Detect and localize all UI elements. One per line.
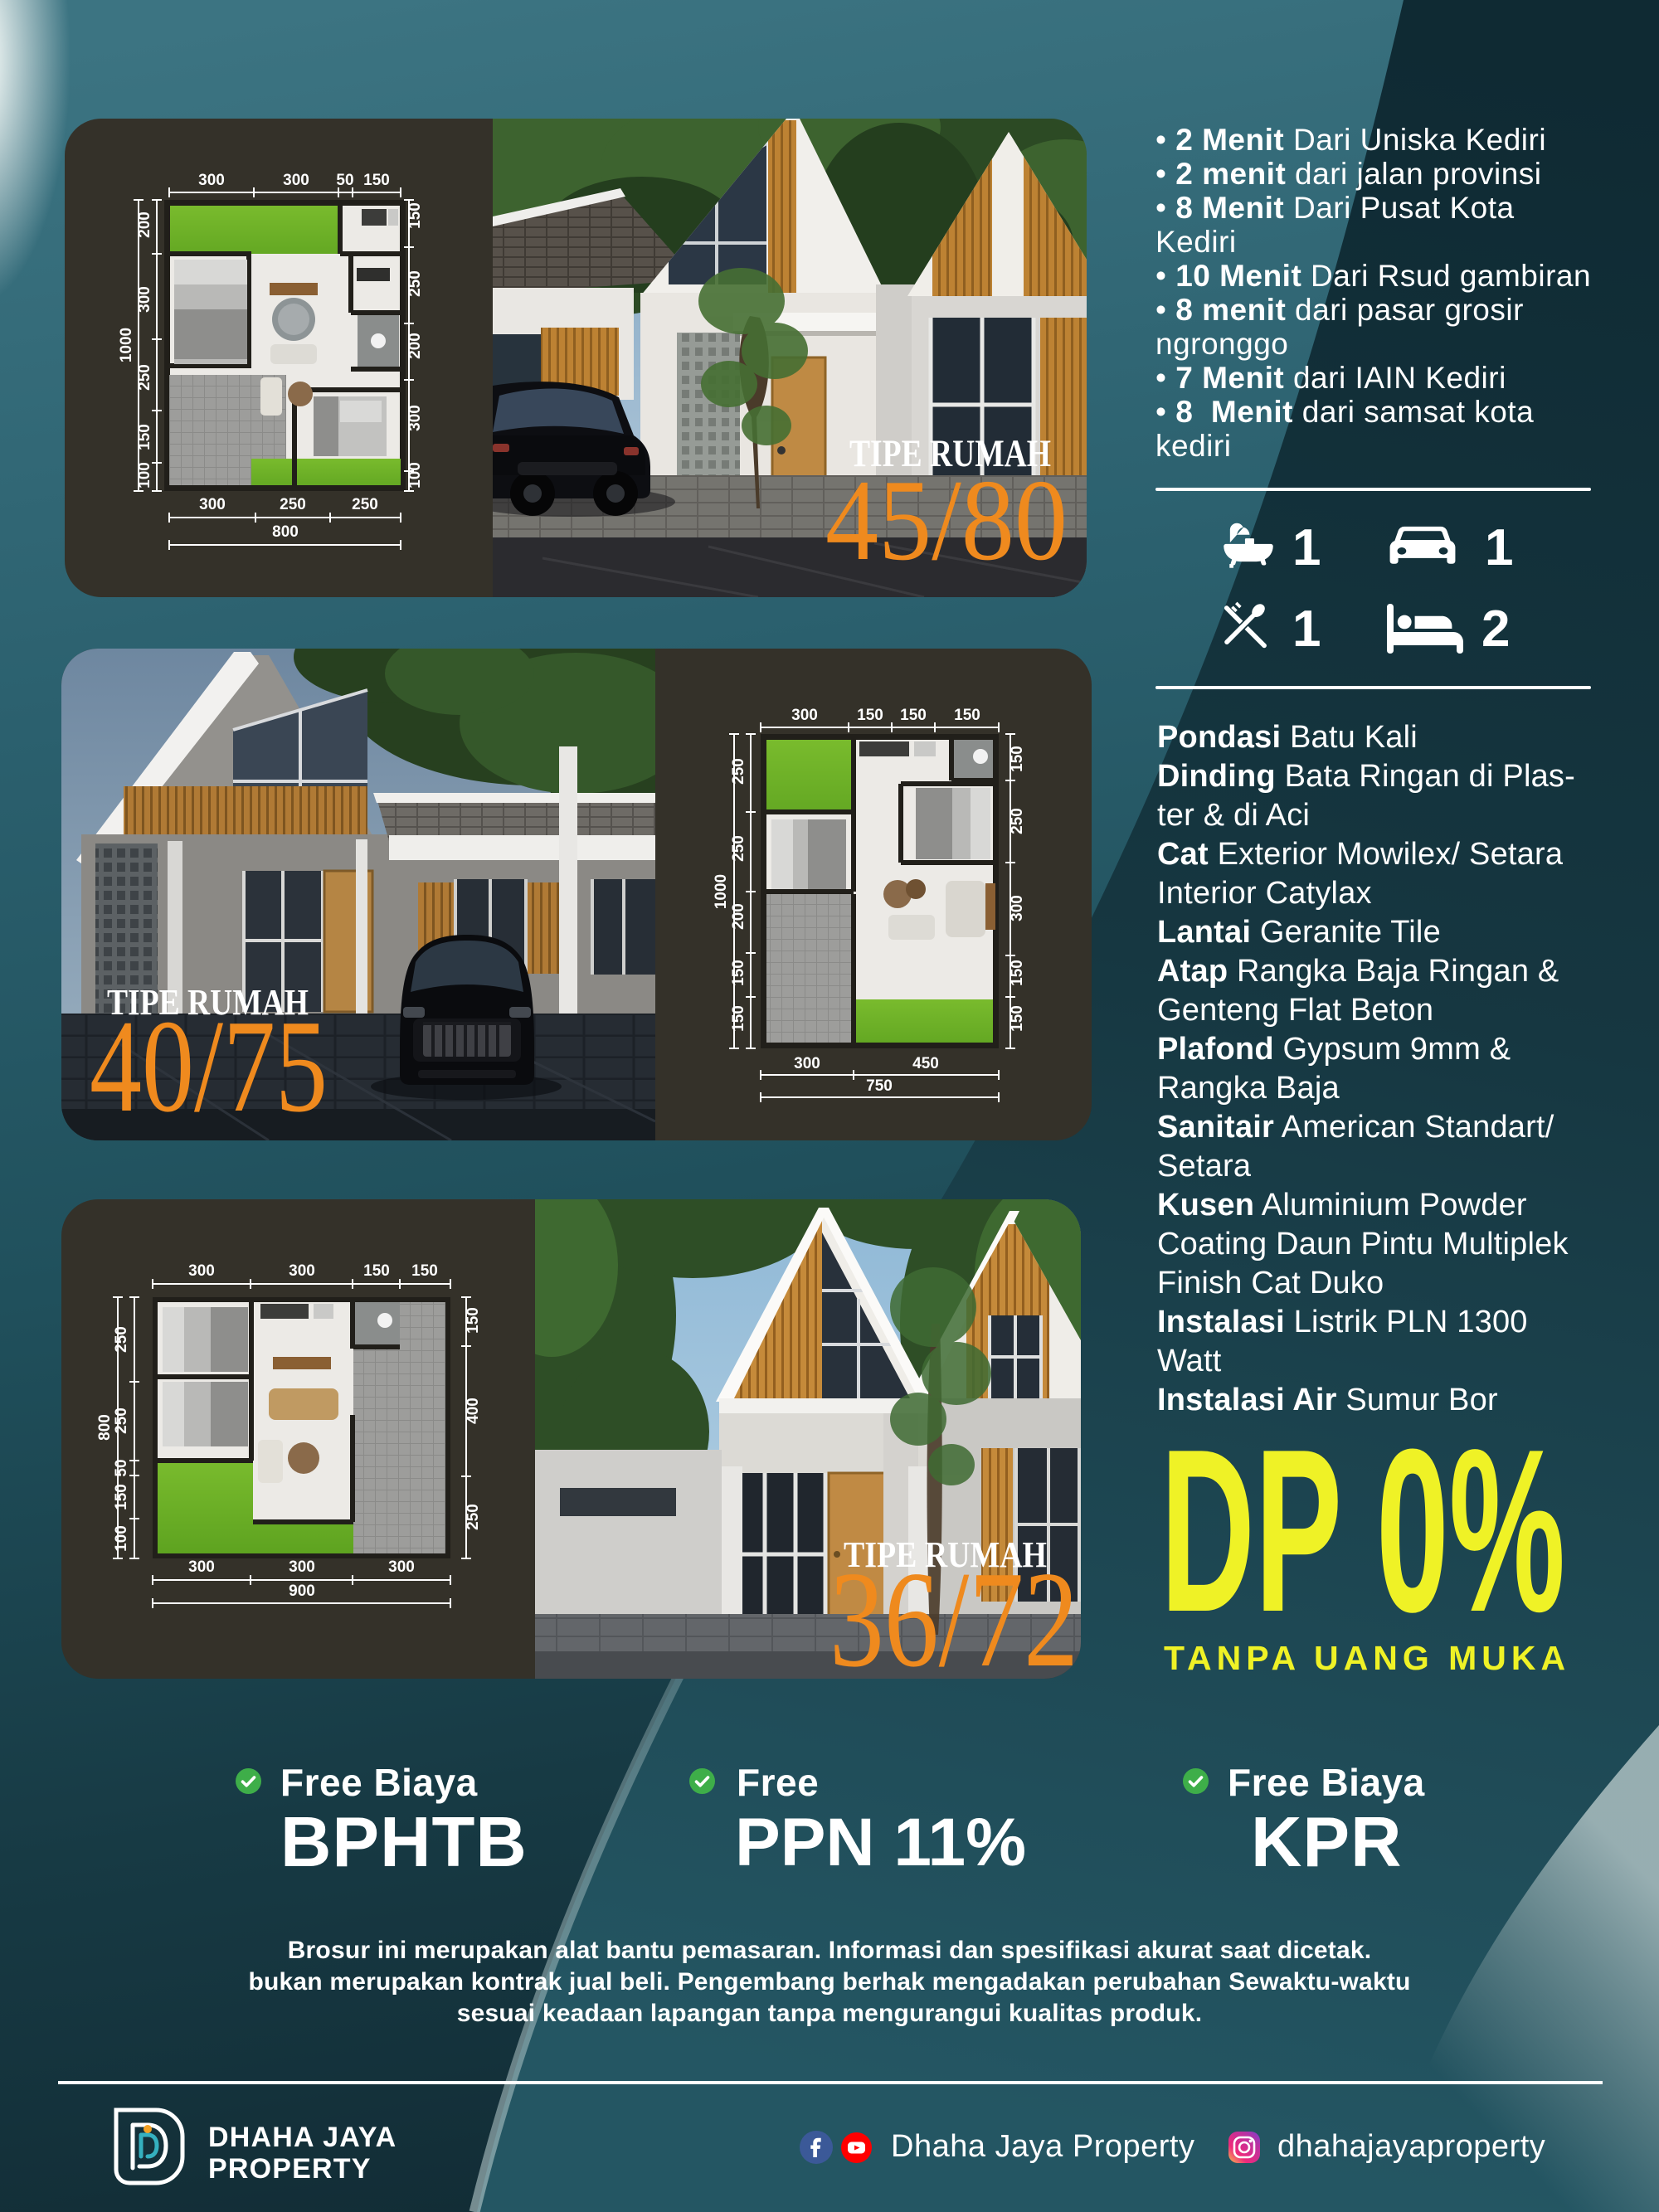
svg-text:150: 150 [113, 1484, 130, 1510]
svg-text:900: 900 [289, 1582, 315, 1600]
svg-text:250: 250 [730, 758, 747, 785]
svg-text:250: 250 [406, 270, 424, 297]
svg-text:150: 150 [1009, 746, 1026, 772]
svg-text:45/80: 45/80 [825, 456, 1068, 564]
svg-text:250: 250 [113, 1407, 130, 1434]
svg-text:800: 800 [272, 523, 299, 541]
svg-text:50: 50 [113, 1459, 130, 1476]
svg-text:1000: 1000 [713, 874, 730, 909]
svg-text:150: 150 [1009, 1005, 1026, 1032]
svg-text:450: 450 [912, 1055, 939, 1072]
svg-text:36/72: 36/72 [829, 1543, 1078, 1679]
svg-text:300: 300 [791, 707, 818, 724]
svg-text:300: 300 [283, 172, 309, 189]
svg-text:300: 300 [289, 1262, 315, 1280]
svg-text:150: 150 [857, 707, 883, 724]
svg-text:150: 150 [406, 202, 424, 229]
svg-text:150: 150 [730, 1005, 747, 1032]
svg-text:100: 100 [113, 1525, 130, 1552]
svg-text:250: 250 [136, 364, 153, 391]
svg-text:250: 250 [352, 496, 378, 513]
svg-text:200: 200 [406, 333, 424, 359]
svg-text:150: 150 [1009, 960, 1026, 986]
svg-text:100: 100 [136, 462, 153, 489]
svg-text:250: 250 [280, 496, 306, 513]
svg-text:300: 300 [388, 1558, 415, 1576]
svg-text:250: 250 [1009, 808, 1026, 834]
svg-text:300: 300 [289, 1558, 315, 1576]
svg-text:300: 300 [199, 496, 226, 513]
svg-text:250: 250 [730, 835, 747, 862]
svg-text:300: 300 [794, 1055, 820, 1072]
svg-text:750: 750 [866, 1077, 893, 1095]
svg-text:150: 150 [730, 960, 747, 986]
svg-text:300: 300 [1009, 895, 1026, 921]
svg-text:200: 200 [730, 903, 747, 930]
svg-text:150: 150 [363, 1262, 390, 1280]
svg-text:300: 300 [188, 1558, 215, 1576]
svg-text:150: 150 [900, 707, 927, 724]
svg-text:150: 150 [363, 172, 390, 189]
svg-text:300: 300 [188, 1262, 215, 1280]
svg-text:300: 300 [198, 172, 225, 189]
svg-text:250: 250 [113, 1326, 130, 1353]
svg-text:800: 800 [96, 1414, 114, 1441]
svg-text:150: 150 [411, 1262, 438, 1280]
svg-text:200: 200 [136, 211, 153, 238]
svg-text:150: 150 [954, 707, 980, 724]
svg-text:100: 100 [406, 462, 424, 489]
svg-text:400: 400 [465, 1398, 482, 1424]
svg-text:300: 300 [136, 286, 153, 313]
svg-text:1000: 1000 [118, 328, 135, 362]
svg-text:150: 150 [465, 1307, 482, 1334]
svg-text:40/75: 40/75 [90, 992, 328, 1140]
svg-text:250: 250 [465, 1504, 482, 1530]
svg-text:300: 300 [406, 405, 424, 431]
svg-text:150: 150 [136, 424, 153, 450]
svg-text:50: 50 [336, 172, 353, 189]
svg-text:DP 0%: DP 0% [1160, 1435, 1565, 1626]
